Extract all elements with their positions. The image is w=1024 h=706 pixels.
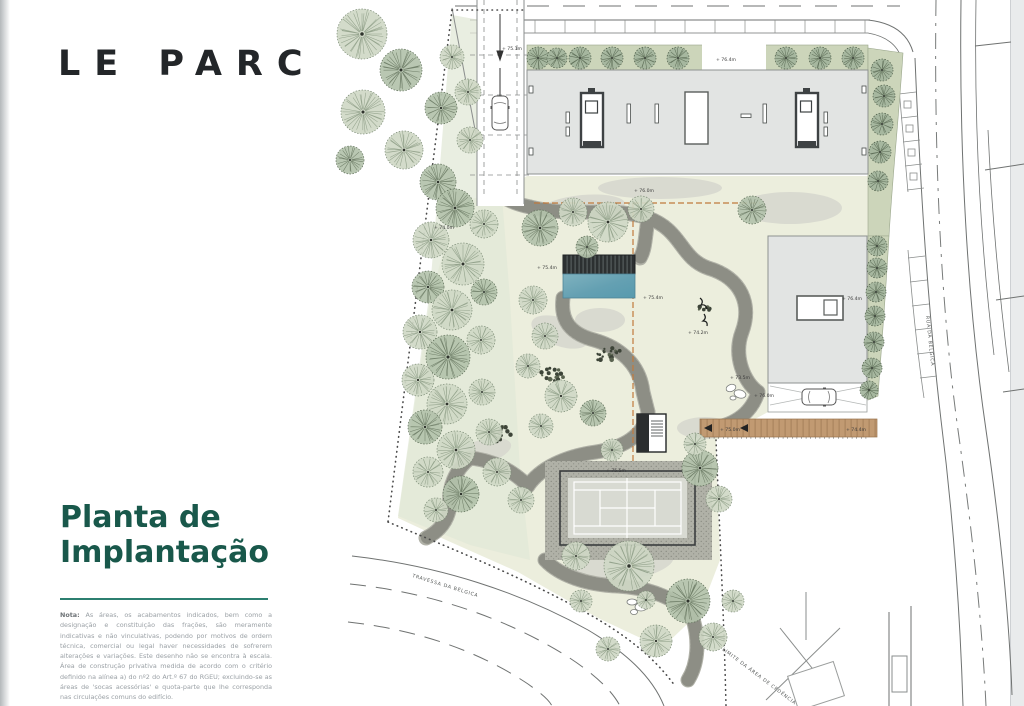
tree	[529, 414, 553, 438]
tree	[699, 623, 727, 651]
tree	[426, 335, 470, 379]
tree	[469, 379, 495, 405]
site-plan-drawing: + 76.4m+ 76.0m+ 76.4m+ 75.4m+ 75.4m+ 74.…	[0, 0, 1024, 706]
tree	[455, 79, 481, 105]
tree	[467, 326, 495, 354]
elevation-marker: + 76.4m	[842, 296, 863, 302]
tree	[775, 47, 797, 69]
tree	[457, 127, 483, 153]
tree	[867, 258, 887, 278]
tree	[682, 450, 718, 486]
tree	[476, 419, 502, 445]
tree	[596, 637, 620, 661]
building-a-core	[581, 88, 603, 147]
tree	[570, 590, 592, 612]
tree	[866, 282, 886, 302]
tree	[873, 85, 895, 107]
car-icon	[802, 388, 836, 407]
tree	[471, 279, 497, 305]
tree	[337, 9, 387, 59]
elevation-marker: + 75.5m	[606, 468, 627, 474]
tree	[634, 47, 656, 69]
elevation-marker: + 74.2m	[688, 330, 709, 336]
tree	[666, 579, 710, 623]
tree	[628, 196, 654, 222]
elevation-marker: + 76.0m	[754, 393, 775, 399]
street-label-bottom: TRAVESSA DA BÉLGICA	[410, 571, 479, 599]
tree	[436, 189, 474, 227]
elevation-marker: + 75.4m	[537, 265, 558, 271]
elevation-marker: + 75.4m	[643, 295, 664, 301]
tree	[522, 210, 558, 246]
tree	[380, 49, 422, 91]
tree	[738, 196, 766, 224]
tree	[809, 47, 831, 69]
car-icon	[491, 96, 510, 130]
swimming-pool	[563, 274, 635, 298]
tree	[604, 541, 654, 591]
tree	[637, 591, 655, 609]
tree	[871, 113, 893, 135]
tree	[601, 47, 623, 69]
elevation-marker: + 74.0m	[434, 225, 455, 231]
tree	[559, 198, 587, 226]
tree	[871, 59, 893, 81]
tree	[440, 45, 464, 69]
tree	[640, 625, 672, 657]
tree	[408, 410, 442, 444]
tree	[516, 354, 540, 378]
tree	[842, 47, 864, 69]
tree	[402, 364, 434, 396]
elevation-marker: + 73.5m	[730, 375, 751, 381]
tree	[432, 290, 472, 330]
tree	[385, 131, 423, 169]
tree	[532, 323, 558, 349]
tree	[470, 210, 498, 238]
tree	[527, 47, 549, 69]
tree	[437, 431, 475, 469]
tree	[684, 433, 706, 455]
street-label-right: RUA DA BÉLGICA	[924, 315, 937, 366]
building-a-core	[796, 88, 818, 147]
tree	[864, 332, 884, 352]
tree	[442, 243, 484, 285]
pool-area	[563, 255, 635, 298]
tree	[413, 457, 443, 487]
tree	[869, 141, 891, 163]
tree	[868, 171, 888, 191]
tree	[443, 476, 479, 512]
pool-deck	[563, 255, 635, 274]
tree	[562, 542, 590, 570]
tree	[547, 48, 567, 68]
tree	[425, 92, 457, 124]
building-a-courtyard	[685, 92, 708, 144]
tree	[336, 146, 364, 174]
tree	[508, 487, 534, 513]
elevation-marker: + 75.0m	[720, 427, 741, 433]
garden-pavilion	[637, 414, 666, 452]
tree	[580, 400, 606, 426]
tree	[341, 90, 385, 134]
elevation-marker: + 76.4m	[716, 57, 737, 63]
tree	[569, 47, 591, 69]
tree	[862, 358, 882, 378]
tree	[667, 47, 689, 69]
elevation-marker: + 75.1m	[502, 46, 523, 52]
tree	[722, 590, 744, 612]
tree	[588, 202, 628, 242]
tree	[601, 439, 623, 461]
tree	[706, 486, 732, 512]
tree	[865, 306, 885, 326]
tree	[860, 381, 878, 399]
building-a	[527, 70, 868, 174]
tree	[576, 236, 598, 258]
elevation-marker: + 74.4m	[846, 427, 867, 433]
tree	[483, 458, 511, 486]
tree	[545, 380, 577, 412]
tree	[867, 236, 887, 256]
elevation-marker: + 76.0m	[634, 188, 655, 194]
tree	[424, 498, 448, 522]
building-b	[768, 236, 867, 383]
boundary-label: LIMITE DA ÁREA DE CEDÊNCIA	[721, 645, 799, 706]
tree	[519, 286, 547, 314]
